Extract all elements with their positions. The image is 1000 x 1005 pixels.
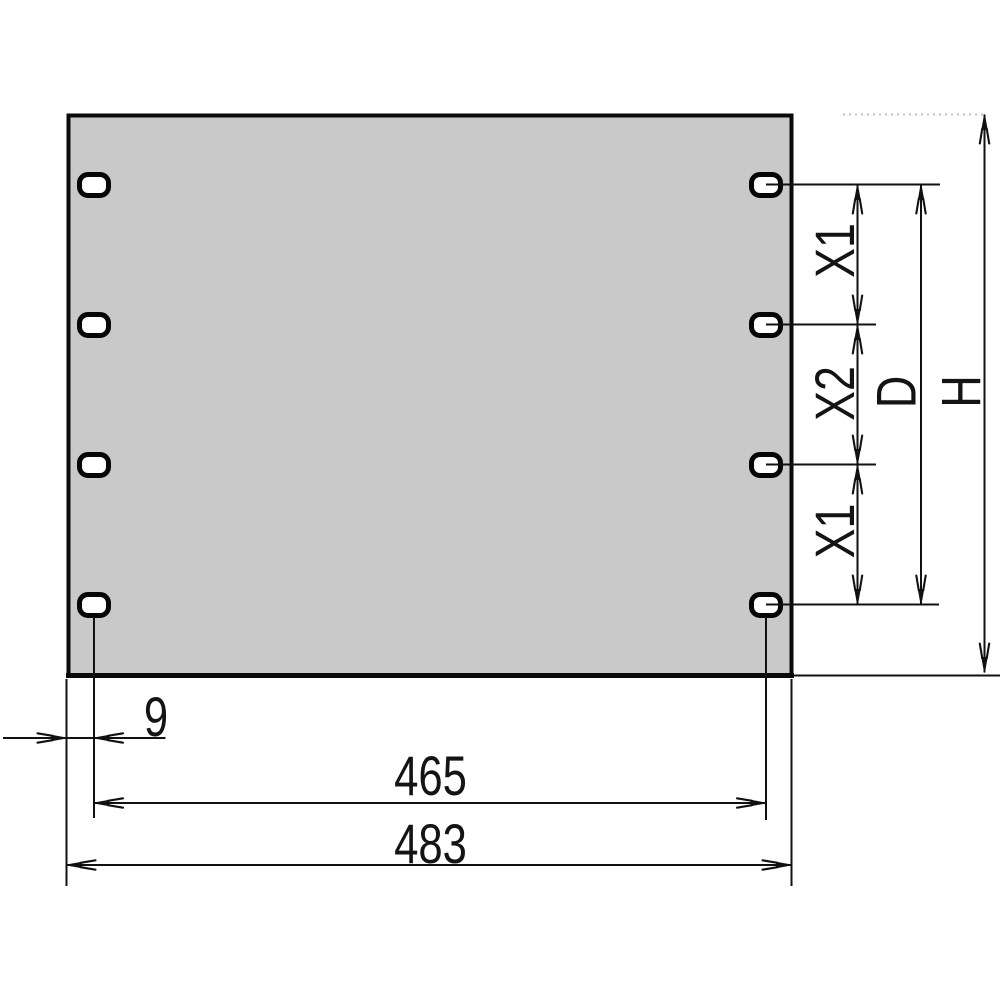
svg-text:X2: X2: [803, 366, 866, 421]
svg-text:D: D: [865, 376, 928, 408]
svg-text:X1: X1: [803, 504, 866, 559]
svg-text:X1: X1: [803, 223, 866, 278]
svg-text:465: 465: [394, 745, 467, 807]
svg-text:H: H: [930, 375, 993, 407]
svg-text:483: 483: [394, 813, 467, 875]
svg-text:9: 9: [144, 686, 168, 748]
